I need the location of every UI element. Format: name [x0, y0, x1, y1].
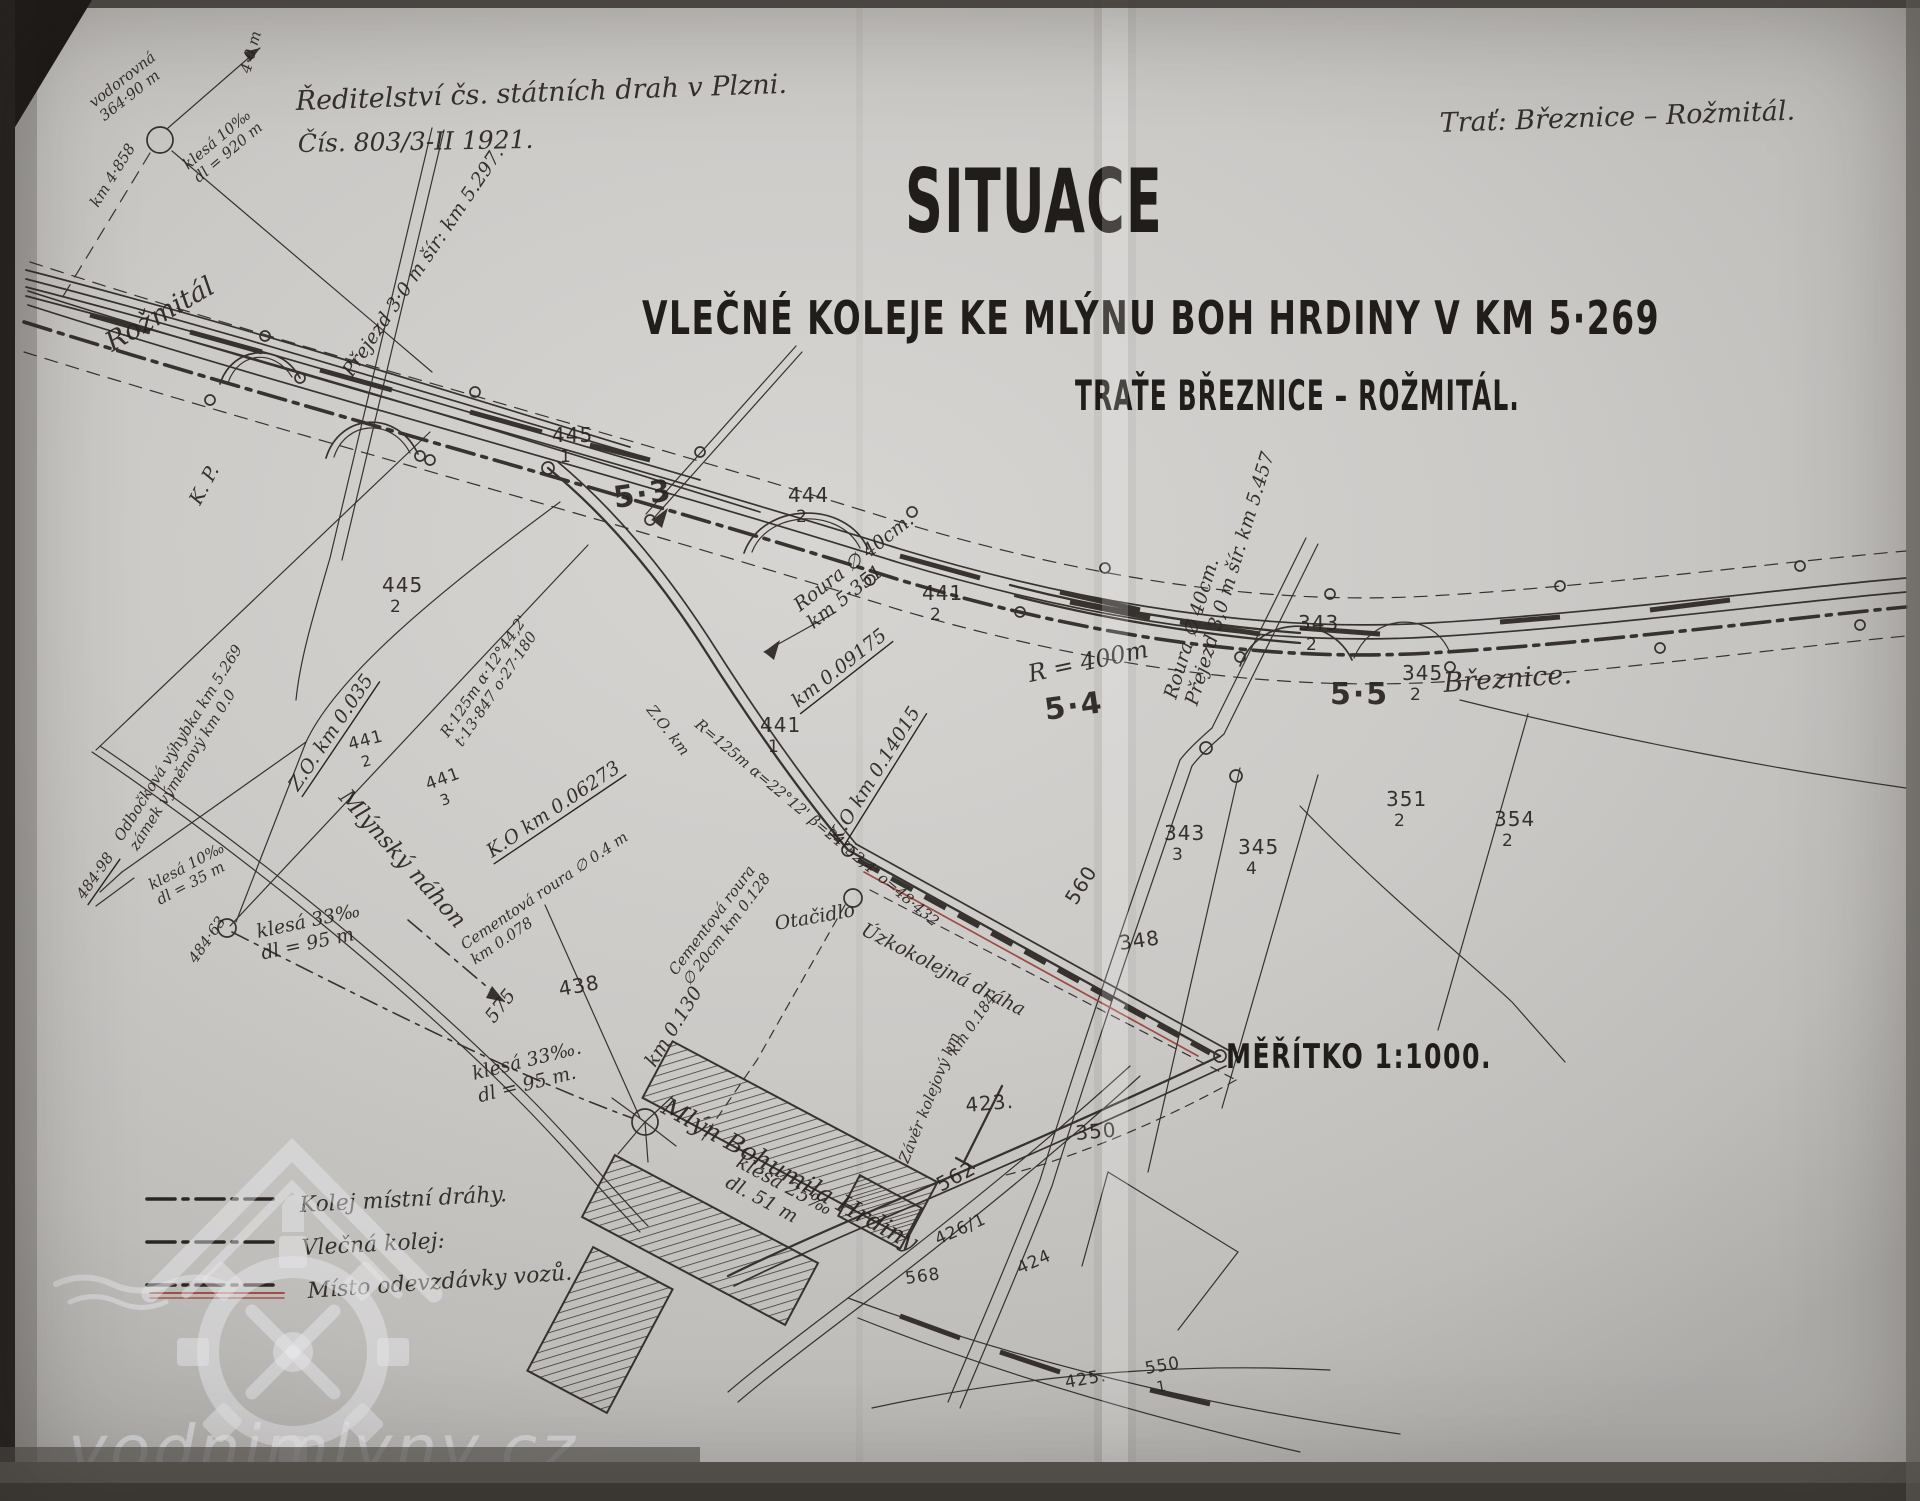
map-label: Březnice.: [1441, 659, 1573, 699]
svg-text:426/1: 426/1: [932, 1209, 989, 1249]
svg-text:3: 3: [438, 789, 454, 810]
svg-text:Březnice.: Březnice.: [1441, 659, 1573, 699]
svg-text:1: 1: [1155, 1377, 1169, 1397]
map-label: 5501: [1143, 1353, 1185, 1398]
map-label: Z.O. km: [642, 701, 693, 760]
svg-text:5·5: 5·5: [1330, 677, 1389, 712]
svg-text:354: 354: [1494, 807, 1535, 831]
map-label: 568: [904, 1264, 942, 1289]
map-label: Úzkokolejná dráha: [858, 918, 1030, 1021]
map-label: Cementová roura∅ 20cm km 0.128: [665, 859, 774, 988]
svg-text:343: 343: [1298, 611, 1339, 635]
subtitle-line2: TRAŤE BŘEZNICE – ROŽMITÁL.: [1075, 370, 1520, 420]
map-label: 575: [481, 985, 521, 1027]
svg-text:345: 345: [1238, 835, 1279, 859]
svg-text:km 0.09175: km 0.09175: [788, 624, 891, 712]
svg-text:2: 2: [359, 751, 374, 771]
map-label: 4452: [382, 573, 423, 617]
svg-text:424: 424: [1014, 1246, 1055, 1279]
map-label: 424: [1014, 1246, 1055, 1279]
issuer-line2: Čís. 803/3-II 1921.: [298, 125, 534, 158]
svg-text:Závěr kolejový km: Závěr kolejový km: [895, 1030, 964, 1167]
svg-text:2: 2: [390, 597, 402, 617]
svg-text:550: 550: [1143, 1353, 1181, 1379]
map-label: 3432: [1298, 611, 1339, 655]
map-label: R·125m α·12°44,2't·13·847 o·27·180: [436, 612, 545, 751]
map-label: 5·5: [1330, 677, 1389, 712]
map-label: vodorovná364·90 m: [85, 48, 169, 125]
map-label: K.O km 0.14015: [823, 701, 927, 849]
map-label: 3512: [1386, 787, 1427, 831]
map-label: 4411: [760, 713, 801, 757]
svg-text:345: 345: [1402, 661, 1443, 685]
svg-text:2: 2: [1410, 685, 1422, 705]
map-label: 423.: [964, 1089, 1014, 1117]
svg-text:3: 3: [1172, 845, 1184, 865]
svg-text:441: 441: [346, 726, 385, 754]
svg-text:K.O km 0.14015: K.O km 0.14015: [823, 703, 925, 848]
svg-text:343: 343: [1164, 821, 1205, 845]
map-label: 3454: [1238, 835, 1279, 879]
map-label: 5·3: [611, 473, 674, 516]
map-label: Přejezd 3·0 m šír: km 5.297.: [337, 143, 508, 382]
map-label: 3542: [1494, 807, 1535, 851]
svg-text:4: 4: [1246, 859, 1258, 879]
map-label: 4·0 m: [236, 29, 265, 76]
map-label: 426/1: [932, 1209, 989, 1249]
svg-text:Otačidlo: Otačidlo: [773, 899, 857, 935]
svg-text:444: 444: [788, 483, 829, 507]
map-label: Závěr kolejový km: [895, 1030, 964, 1167]
svg-text:423.: 423.: [964, 1089, 1014, 1117]
map-label: 4412: [922, 581, 963, 625]
svg-text:1: 1: [768, 737, 780, 757]
svg-text:484·63: 484·63: [184, 913, 229, 967]
svg-text:Z.O. km: Z.O. km: [642, 701, 693, 760]
svg-text:5·3: 5·3: [611, 473, 674, 516]
map-label: 4451: [552, 423, 593, 467]
svg-text:2: 2: [1306, 635, 1318, 655]
svg-text:4·0 m: 4·0 m: [236, 29, 265, 76]
svg-text:438: 438: [557, 970, 602, 1001]
map-label: klesá 10‰dl = 35 m: [145, 838, 235, 908]
map-label: K. P.: [185, 462, 224, 510]
map-label: klesá 33‰.dl = 95 m.: [470, 1036, 589, 1107]
svg-text:575: 575: [481, 985, 521, 1027]
svg-text:1: 1: [560, 447, 572, 467]
map-label: 484·98: [71, 847, 120, 905]
map-label: km 0.09175: [786, 623, 893, 714]
map-label: Otačidlo: [773, 899, 857, 935]
map-label: 3452: [1402, 661, 1443, 705]
svg-text:2: 2: [930, 605, 942, 625]
map-label: 438: [557, 970, 602, 1001]
map-label: 3433: [1164, 821, 1205, 865]
svg-text:441: 441: [922, 581, 963, 605]
map-label: klesá 10‰dl = 920 m: [179, 105, 266, 186]
parcel-boundaries-right: [1082, 700, 1906, 1330]
svg-text:2: 2: [796, 507, 808, 527]
scanned-plan-photo: vodorovná364·90 m4·0 mkm 4·858klesá 10‰d…: [0, 0, 1920, 1501]
svg-text:562: 562: [932, 1156, 980, 1197]
issuer-line1: Ředitelství čs. státních drah v Plzni.: [294, 67, 787, 117]
map-label: Odbočková výhybka km 5.269zámek výměnový…: [110, 641, 262, 854]
svg-text:441: 441: [760, 713, 801, 737]
svg-text:K. P.: K. P.: [185, 462, 224, 510]
map-label: klesá 33‰dl = 95 m: [254, 899, 366, 964]
map-label: Roura ∅ 40cm.Přejezd 3,0 m šír. km 5.457: [1159, 442, 1279, 709]
map-label: 484·63: [184, 913, 229, 967]
svg-text:Přejezd 3·0 m šír: km 5.297.: Přejezd 3·0 m šír: km 5.297.: [337, 143, 508, 382]
svg-text:568: 568: [904, 1264, 942, 1289]
map-label: 562: [932, 1156, 980, 1197]
svg-text:2: 2: [1394, 811, 1406, 831]
svg-text:km 4·858: km 4·858: [86, 140, 139, 210]
map-label: 4413: [423, 764, 470, 813]
map-label: km 4·858: [86, 140, 139, 210]
mill-window-icon: [282, 1195, 304, 1232]
map-label: 4412: [346, 726, 390, 773]
plan-svg: vodorovná364·90 m4·0 mkm 4·858klesá 10‰d…: [0, 0, 1920, 1501]
scale-label: MĚŘÍTKO 1:1000.: [1226, 1036, 1492, 1077]
svg-text:351: 351: [1386, 787, 1427, 811]
route-label: Trať: Březnice – Rožmitál.: [1439, 96, 1795, 139]
subtitle-line1: VLEČNÉ KOLEJE KE MLÝNU BOH HRDINY V KM 5…: [642, 290, 1660, 345]
svg-text:Úzkokolejná dráha: Úzkokolejná dráha: [858, 918, 1030, 1021]
svg-text:2: 2: [1502, 831, 1514, 851]
svg-text:445: 445: [552, 423, 593, 447]
svg-text:445: 445: [382, 573, 423, 597]
